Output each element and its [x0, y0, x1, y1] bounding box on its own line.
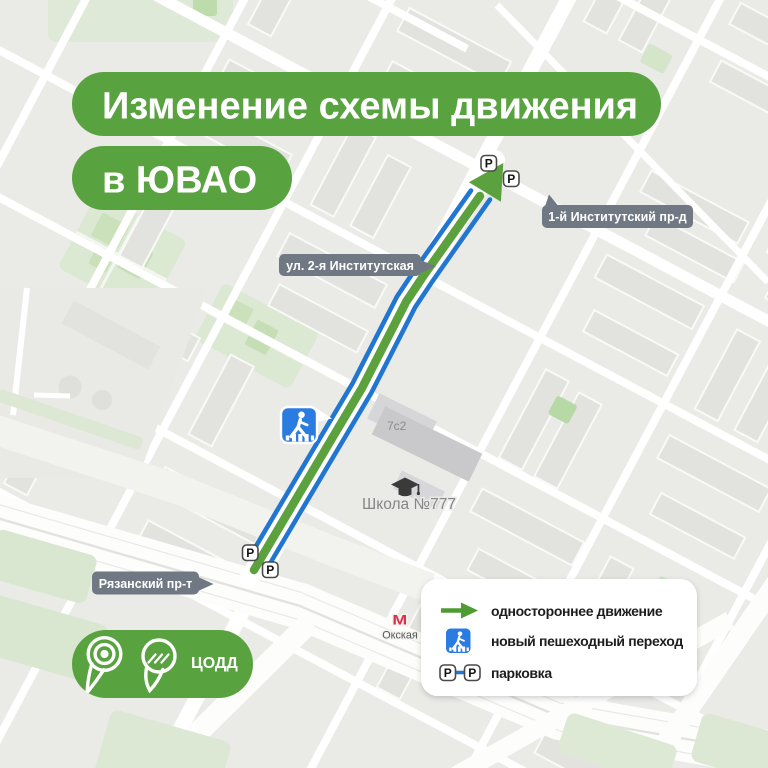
svg-text:Рязанский пр-т: Рязанский пр-т	[99, 577, 193, 591]
svg-text:1-й Институтский пр-д: 1-й Институтский пр-д	[548, 210, 686, 224]
svg-text:P: P	[507, 172, 515, 186]
svg-text:P: P	[266, 563, 274, 577]
svg-text:ЦОДД: ЦОДД	[191, 655, 238, 672]
svg-text:Школа №777: Школа №777	[362, 496, 456, 513]
svg-text:P: P	[468, 666, 476, 680]
svg-text:Изменение схемы движения: Изменение схемы движения	[102, 86, 638, 128]
svg-text:7с2: 7с2	[387, 419, 407, 433]
svg-text:парковка: парковка	[491, 665, 552, 681]
svg-text:одностороннее движение: одностороннее движение	[491, 603, 663, 619]
svg-text:P: P	[485, 157, 493, 171]
svg-text:Окская: Окская	[382, 630, 418, 642]
svg-text:P: P	[246, 546, 254, 560]
svg-text:ул. 2-я Институтская: ул. 2-я Институтская	[286, 259, 414, 273]
svg-text:новый пешеходный переход: новый пешеходный переход	[491, 633, 683, 649]
svg-text:М: М	[392, 613, 407, 628]
svg-text:в ЮВАО: в ЮВАО	[102, 160, 257, 202]
svg-text:P: P	[444, 666, 452, 680]
